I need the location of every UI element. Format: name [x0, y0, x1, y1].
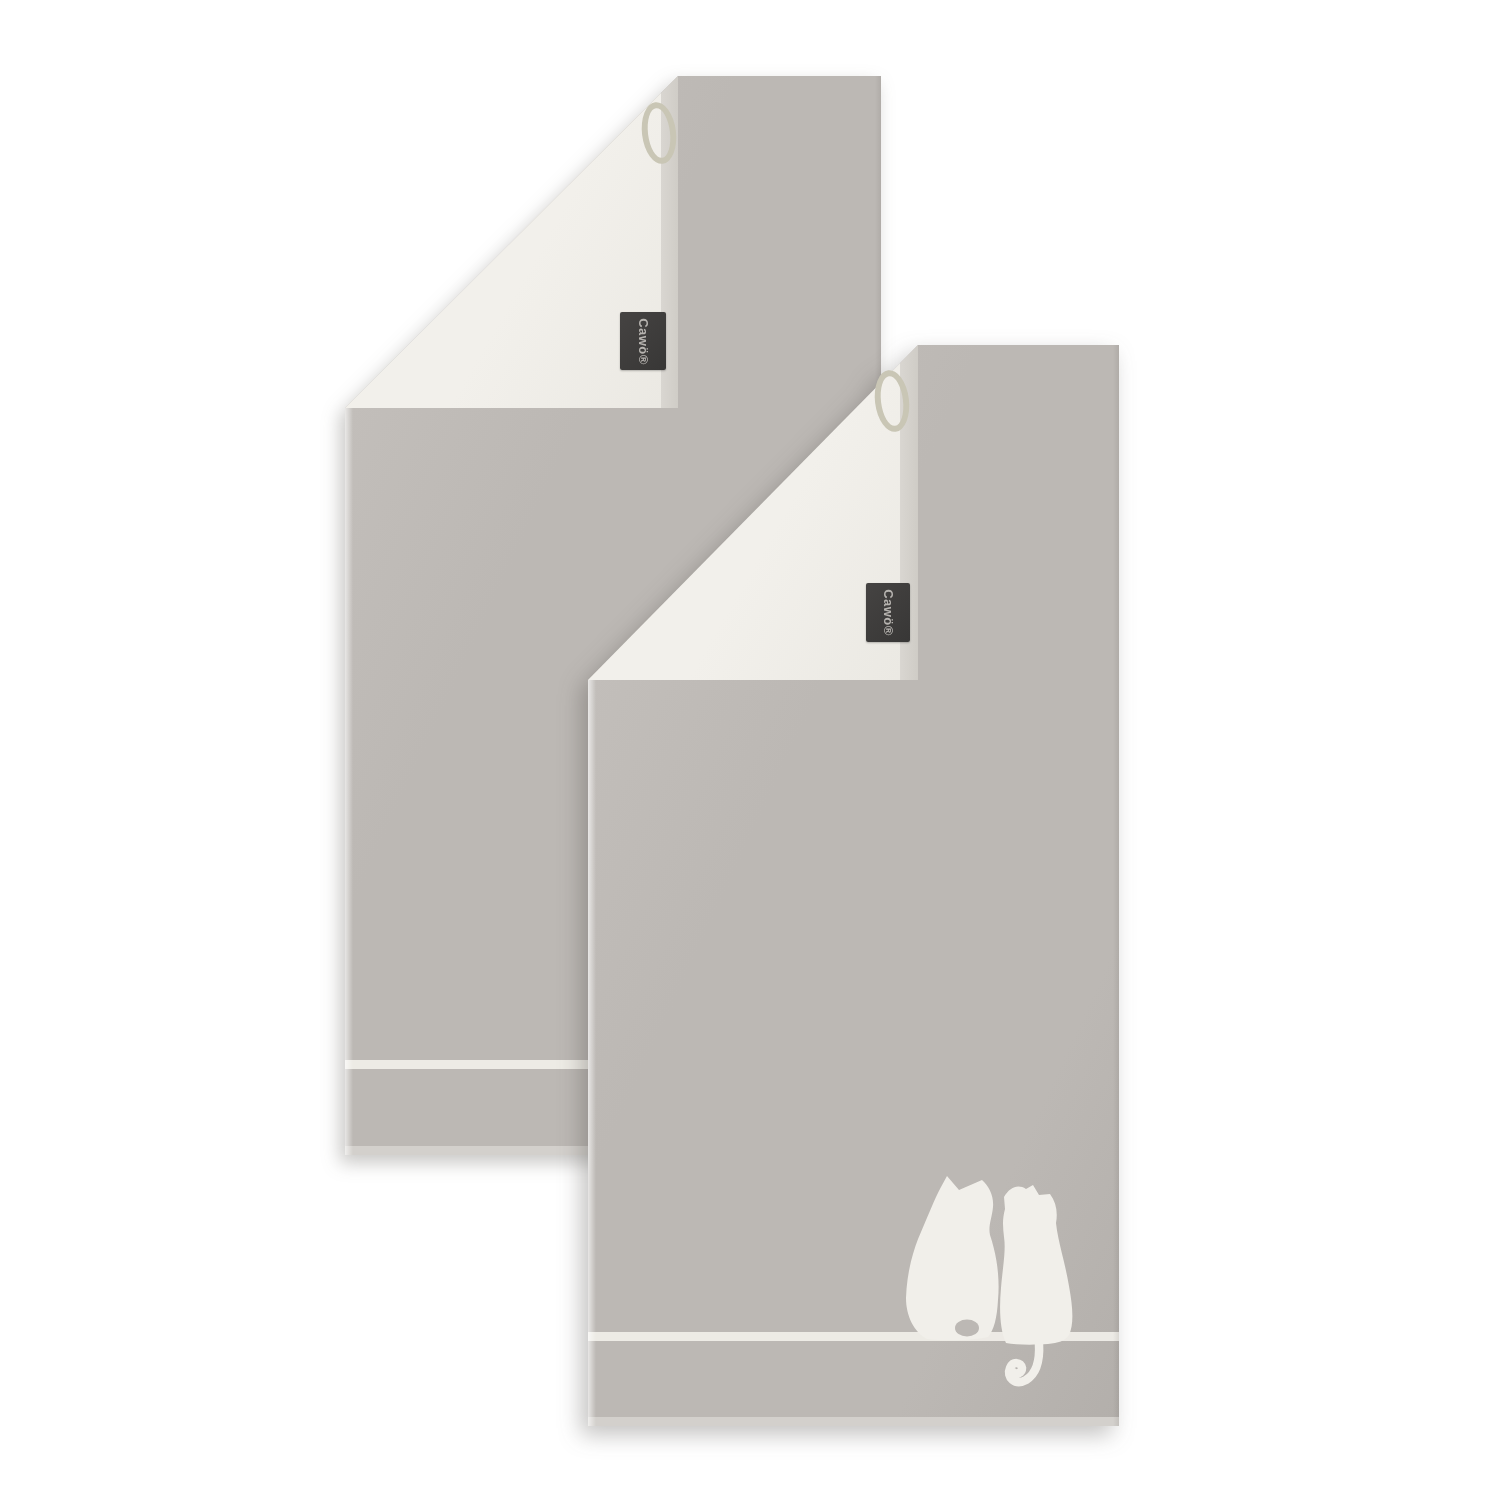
towel-front: Cawö®: [588, 345, 1119, 1426]
product-photo: Cawö® Cawö®: [0, 0, 1500, 1500]
towel-back-left-edge: [345, 408, 353, 1155]
cat-left-silhouette: [906, 1176, 999, 1340]
towel-front-brand-label: Cawö®: [866, 583, 910, 642]
two-cats-motif: [900, 1160, 1100, 1400]
cat-right-tail: [1009, 1344, 1039, 1382]
cat-right-silhouette: [1000, 1185, 1072, 1345]
towel-front-left-edge: [588, 680, 596, 1426]
towel-front-right-edge: [1113, 345, 1119, 1426]
brand-label-text: Cawö®: [881, 589, 896, 636]
towel-front-bottom-hem: [588, 1417, 1119, 1426]
cat-left-tail-curl: [955, 1320, 979, 1337]
